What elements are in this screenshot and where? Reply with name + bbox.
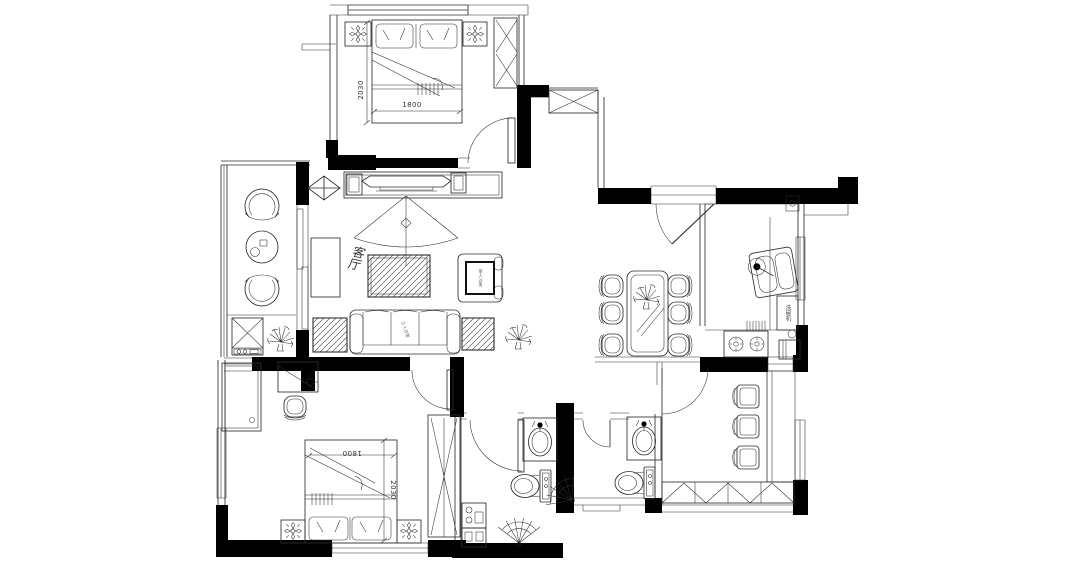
floor-plan-page: 2030 1800 客厅 单人 [0,0,1074,576]
dim-master-bed-length: 2030 [357,80,365,99]
window-bedroom2-bottom [332,542,428,555]
dim-master-bed-width: 1800 [402,101,421,109]
side-table-left [313,318,347,352]
dim-second-bed-width: 1800 [342,449,361,457]
kitchen-appliance-label: 洗碗机 [785,304,792,323]
side-table-right [462,318,494,350]
armchair-label: 单人沙发 [478,268,483,288]
dim-second-bed-length: 2030 [389,480,397,499]
floor-plan-svg: 2030 1800 客厅 单人 [0,0,1074,576]
coffee-table [368,255,430,297]
